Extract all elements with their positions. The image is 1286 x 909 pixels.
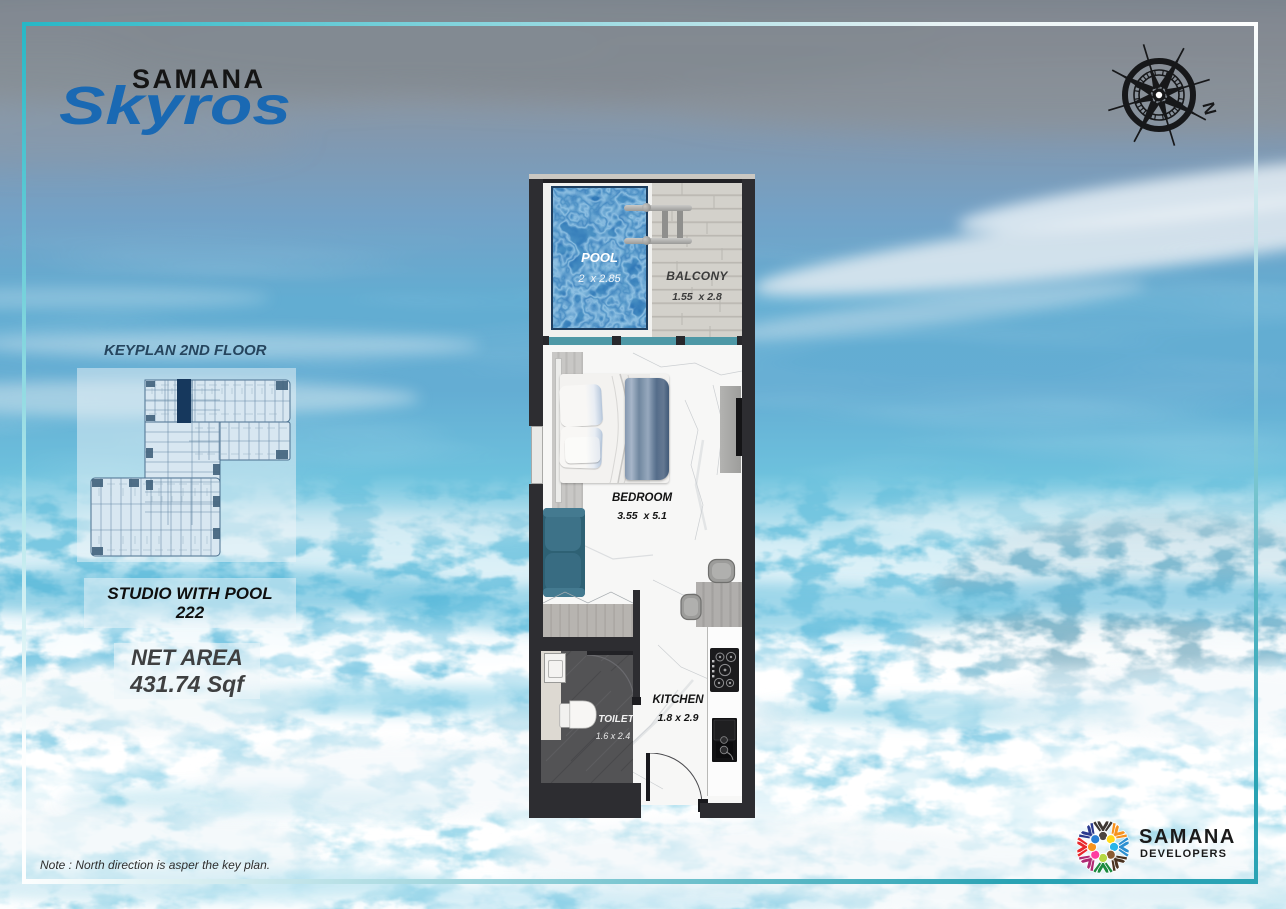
svg-text:Skyros: Skyros [59, 80, 291, 136]
svg-text:N: N [1198, 100, 1220, 117]
